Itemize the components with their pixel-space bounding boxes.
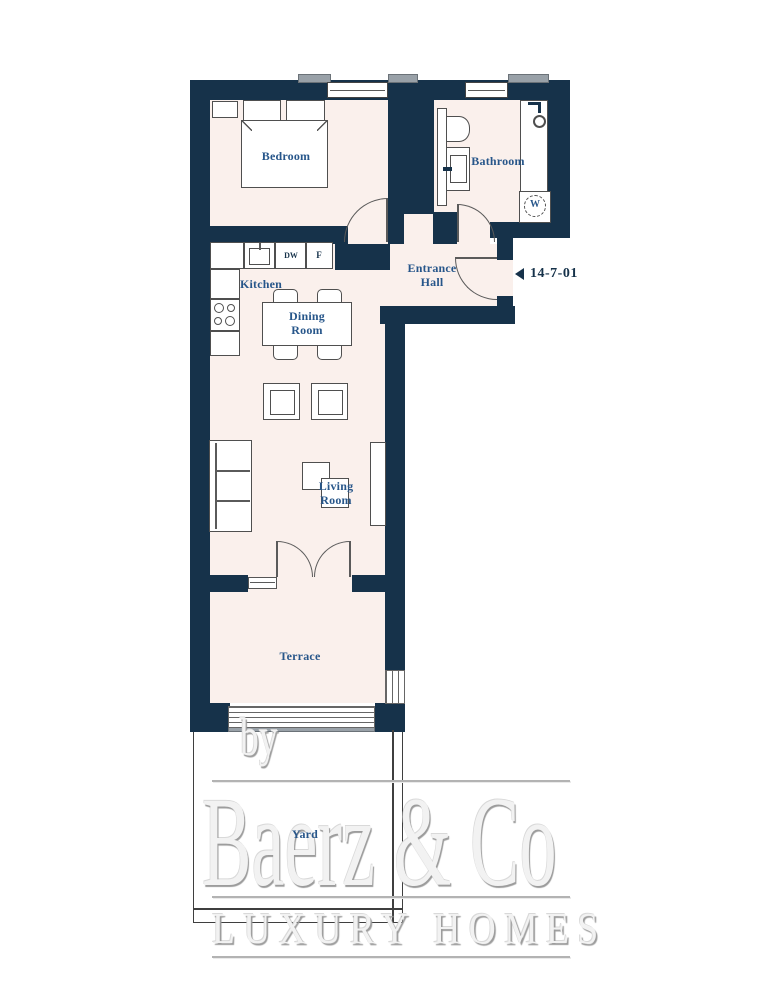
wall-terrace-right bbox=[385, 580, 405, 672]
bed-pillow bbox=[286, 100, 325, 121]
terrace-sidelight bbox=[248, 577, 277, 589]
burner bbox=[225, 316, 235, 326]
bed-pillow bbox=[243, 100, 281, 121]
kitchen-counter bbox=[210, 242, 244, 269]
tv-unit bbox=[370, 442, 386, 526]
wall-partition-stub-right bbox=[433, 212, 457, 244]
nightstand bbox=[212, 101, 238, 118]
bathroom-window bbox=[465, 82, 508, 98]
bed-sheet-fold bbox=[242, 121, 252, 131]
wall-terrace-corner-left bbox=[190, 703, 230, 732]
bathroom-door-leaf bbox=[457, 204, 459, 242]
entrance-hall-label: Entrance Hall bbox=[400, 262, 464, 290]
armchair-cushion bbox=[270, 390, 295, 415]
hall-north-opening bbox=[404, 214, 433, 248]
yard-label: Yard bbox=[283, 828, 327, 842]
terrace-side-steps bbox=[385, 670, 405, 704]
dining-room-label: Dining Room bbox=[282, 310, 332, 338]
entrance-door-leaf bbox=[455, 257, 497, 259]
entrance-direction-icon bbox=[515, 268, 524, 280]
stove bbox=[210, 299, 240, 331]
burner bbox=[227, 304, 235, 312]
sofa-cushion-line bbox=[217, 470, 250, 472]
kitchen-sink bbox=[249, 248, 270, 265]
terrace-door-left-leaf bbox=[276, 541, 278, 577]
window-glass-line bbox=[330, 90, 385, 91]
terrace-floor bbox=[210, 592, 385, 703]
sofa-cushion-line bbox=[217, 500, 250, 502]
watermark-by: by bbox=[240, 710, 278, 764]
armchair-cushion bbox=[318, 390, 343, 415]
floor-plan: W DW F bbox=[0, 0, 775, 1000]
watermark-rule-middle bbox=[212, 896, 570, 898]
kitchen-faucet bbox=[259, 243, 261, 250]
bathroom-label: Bathroom bbox=[462, 155, 534, 169]
shower-arm bbox=[538, 102, 541, 113]
bedroom-label: Bedroom bbox=[250, 150, 322, 164]
watermark-brand: Baerz & Co bbox=[202, 778, 557, 906]
dining-chair bbox=[273, 345, 298, 360]
wall-kitchen-hall-divider bbox=[335, 244, 390, 270]
wall-living-right bbox=[385, 306, 405, 592]
window-glass-line bbox=[468, 90, 505, 91]
entrance-door-opening bbox=[497, 260, 513, 296]
sofa bbox=[209, 440, 252, 532]
wall-bath-bottom bbox=[490, 222, 570, 238]
terrace-label: Terrace bbox=[270, 650, 330, 664]
wall-entry-stub-top bbox=[497, 238, 513, 260]
watermark-tagline: LUXURY HOMES bbox=[212, 907, 607, 951]
unit-number: 14-7-01 bbox=[530, 266, 578, 282]
shower-head-icon bbox=[533, 115, 546, 128]
wall-partition-stub-left bbox=[388, 218, 404, 244]
armchair bbox=[263, 383, 300, 420]
washer-label: W bbox=[528, 199, 542, 210]
wall-left bbox=[190, 80, 210, 732]
shower bbox=[520, 100, 548, 192]
dishwasher-label: DW bbox=[281, 251, 301, 260]
bedroom-window bbox=[327, 82, 388, 98]
burner bbox=[214, 317, 222, 325]
facade-pier bbox=[388, 74, 418, 83]
wall-terrace-corner-right bbox=[375, 703, 405, 732]
facade-pier bbox=[508, 74, 549, 83]
wall-living-bottom-left bbox=[190, 575, 248, 592]
terrace-door-right-leaf bbox=[349, 541, 351, 577]
armchair bbox=[311, 383, 348, 420]
fridge-label: F bbox=[311, 250, 327, 260]
sidelight-glass-line bbox=[250, 582, 275, 583]
dining-chair bbox=[317, 289, 342, 303]
bedroom-dresser bbox=[258, 228, 295, 236]
kitchen-label: Kitchen bbox=[233, 278, 289, 292]
unit-tag: 14-7-01 bbox=[515, 266, 578, 282]
burner bbox=[214, 303, 224, 313]
bathroom-faucet bbox=[443, 167, 452, 171]
toilet bbox=[446, 116, 470, 142]
bed-sheet-fold bbox=[317, 121, 327, 131]
living-room-label: Living Room bbox=[313, 480, 359, 508]
kitchen-counter bbox=[210, 331, 240, 356]
watermark-rule-bottom bbox=[212, 956, 570, 958]
wall-right-top-block bbox=[548, 80, 570, 228]
wall-partition-bed-bath bbox=[388, 96, 434, 218]
dining-chair bbox=[317, 345, 342, 360]
sofa-back-line bbox=[215, 443, 217, 529]
bedroom-door-leaf bbox=[386, 198, 388, 242]
